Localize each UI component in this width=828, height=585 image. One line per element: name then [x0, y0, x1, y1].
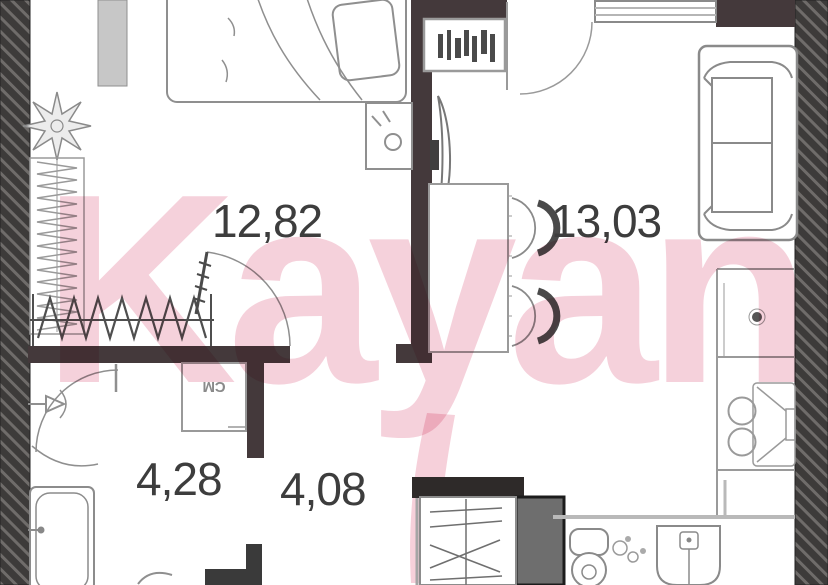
kitchen-sink — [753, 383, 795, 466]
chair — [512, 286, 557, 346]
bed — [167, 0, 406, 102]
living-shelf — [424, 19, 505, 71]
room-label-hallway: 4,08 — [280, 462, 366, 516]
hob-burners — [729, 398, 756, 456]
room-label-kitchen-living: 13,03 — [551, 194, 661, 248]
bedroom-wardrobe — [30, 158, 214, 346]
hall-wardrobe — [420, 497, 516, 585]
bathroom-doors — [32, 364, 118, 466]
nightstand-lamp — [366, 103, 412, 169]
decor-bubbles — [613, 536, 646, 562]
kitchen-counter — [717, 269, 795, 517]
separators — [553, 480, 795, 517]
wall-pier — [98, 0, 127, 86]
window-top — [595, 1, 716, 22]
plant — [23, 92, 91, 160]
room-label-bedroom: 12,82 — [212, 194, 322, 248]
toilet — [570, 529, 608, 585]
floor-plan: 12,82 13,03 4,28 4,08 СМ Kayan — [0, 0, 828, 585]
desk-table — [429, 184, 512, 352]
vent-shaft — [516, 497, 564, 585]
washing-machine — [182, 363, 246, 431]
balcony-door — [507, 2, 592, 94]
bedroom-door — [193, 252, 290, 346]
sofa — [699, 46, 797, 240]
cut-fixture — [138, 573, 172, 584]
washing-machine-label: СМ — [182, 378, 246, 395]
room-label-bathroom: 4,28 — [136, 452, 222, 506]
wc-sink — [657, 526, 720, 585]
bathtub — [28, 487, 94, 585]
floor-plan-drawing — [0, 0, 828, 585]
